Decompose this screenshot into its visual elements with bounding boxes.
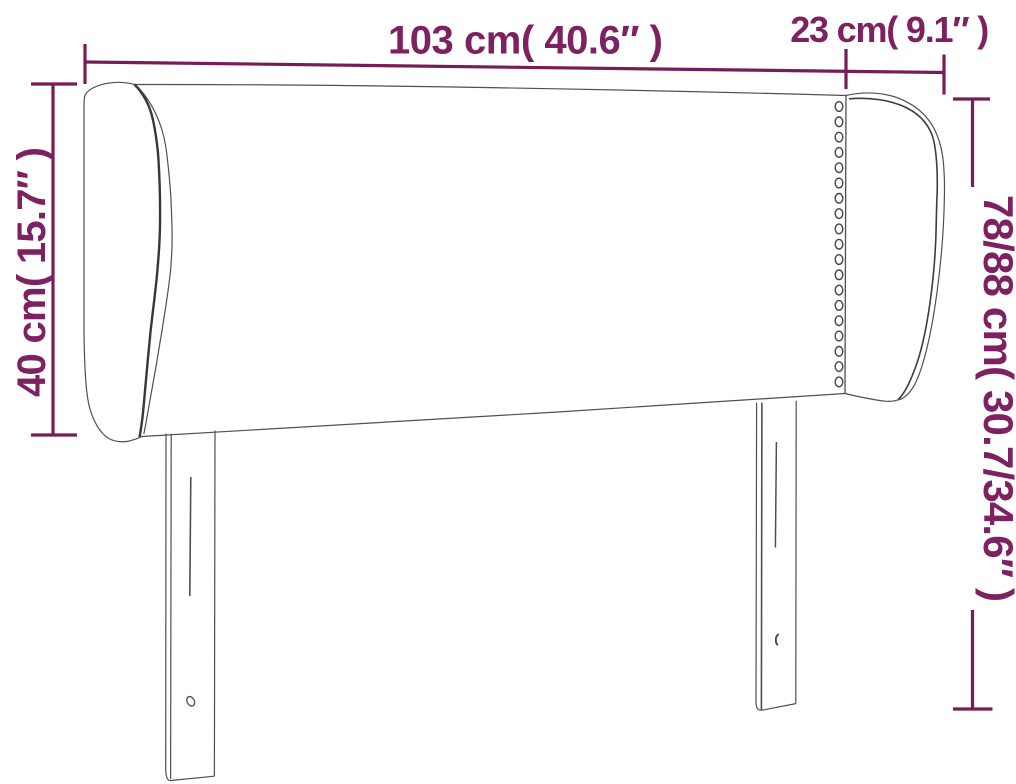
svg-text:23 cm( 9.1″ ): 23 cm( 9.1″ ) — [790, 9, 989, 50]
svg-text:40 cm( 15.7″ ): 40 cm( 15.7″ ) — [10, 147, 54, 397]
svg-text:78/88 cm( 30.7/34.6″ ): 78/88 cm( 30.7/34.6″ ) — [975, 195, 1016, 602]
svg-text:103 cm( 40.6″ ): 103 cm( 40.6″ ) — [388, 19, 663, 63]
